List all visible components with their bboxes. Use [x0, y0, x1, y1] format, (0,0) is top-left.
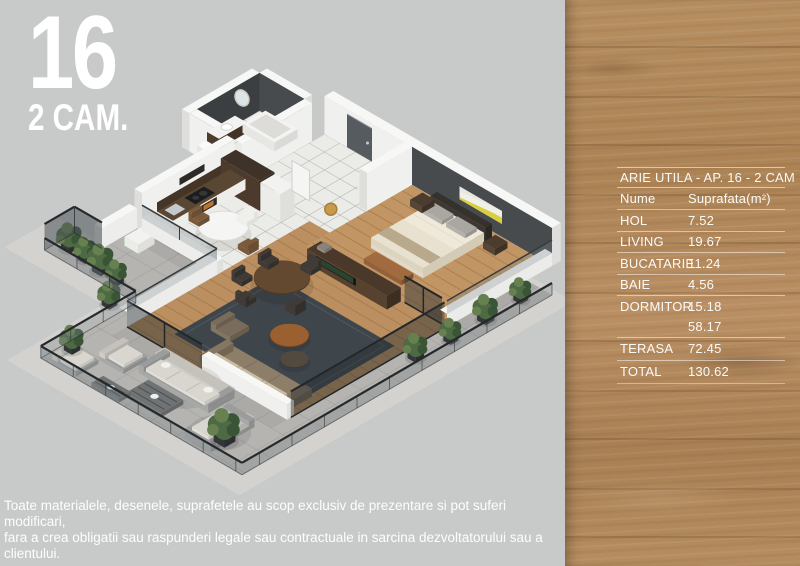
header-value: Suprafata(m²): [688, 191, 785, 206]
disclaimer-line-2: fara a crea obligatii sau raspunderi leg…: [4, 530, 564, 562]
apartment-badge: 16 2 CAM.: [28, 12, 128, 136]
table-row-total: TOTAL 130.62: [617, 360, 785, 383]
table-row: BUCATARIE 11.24: [617, 252, 785, 274]
area-table-header: Nume Suprafata(m²): [617, 188, 785, 209]
wood-panel: ARIE UTILA - AP. 16 - 2 CAM Nume Suprafa…: [565, 0, 800, 566]
page: 16 2 CAM. ARIE UTILA - AP. 16 - 2 CAM Nu…: [0, 0, 800, 566]
disclaimer-line-1: Toate materialele, desenele, suprafetele…: [4, 498, 564, 530]
table-row: DORMITOR 15.18: [617, 295, 785, 317]
apartment-type: 2 CAM.: [28, 99, 128, 136]
table-bottom-line: [617, 383, 785, 384]
table-row: LIVING 19.67: [617, 231, 785, 253]
header-name: Nume: [617, 191, 688, 206]
table-row: HOL 7.52: [617, 209, 785, 231]
table-row: TERASA 72.45: [617, 337, 785, 360]
apartment-number: 16: [28, 12, 128, 95]
area-table-title: ARIE UTILA - AP. 16 - 2 CAM: [617, 167, 785, 188]
table-row-subtotal: 58.17: [617, 317, 785, 338]
area-table: ARIE UTILA - AP. 16 - 2 CAM Nume Suprafa…: [617, 167, 785, 384]
legal-disclaimer: Toate materialele, desenele, suprafetele…: [4, 498, 564, 562]
table-row: BAIE 4.56: [617, 274, 785, 296]
